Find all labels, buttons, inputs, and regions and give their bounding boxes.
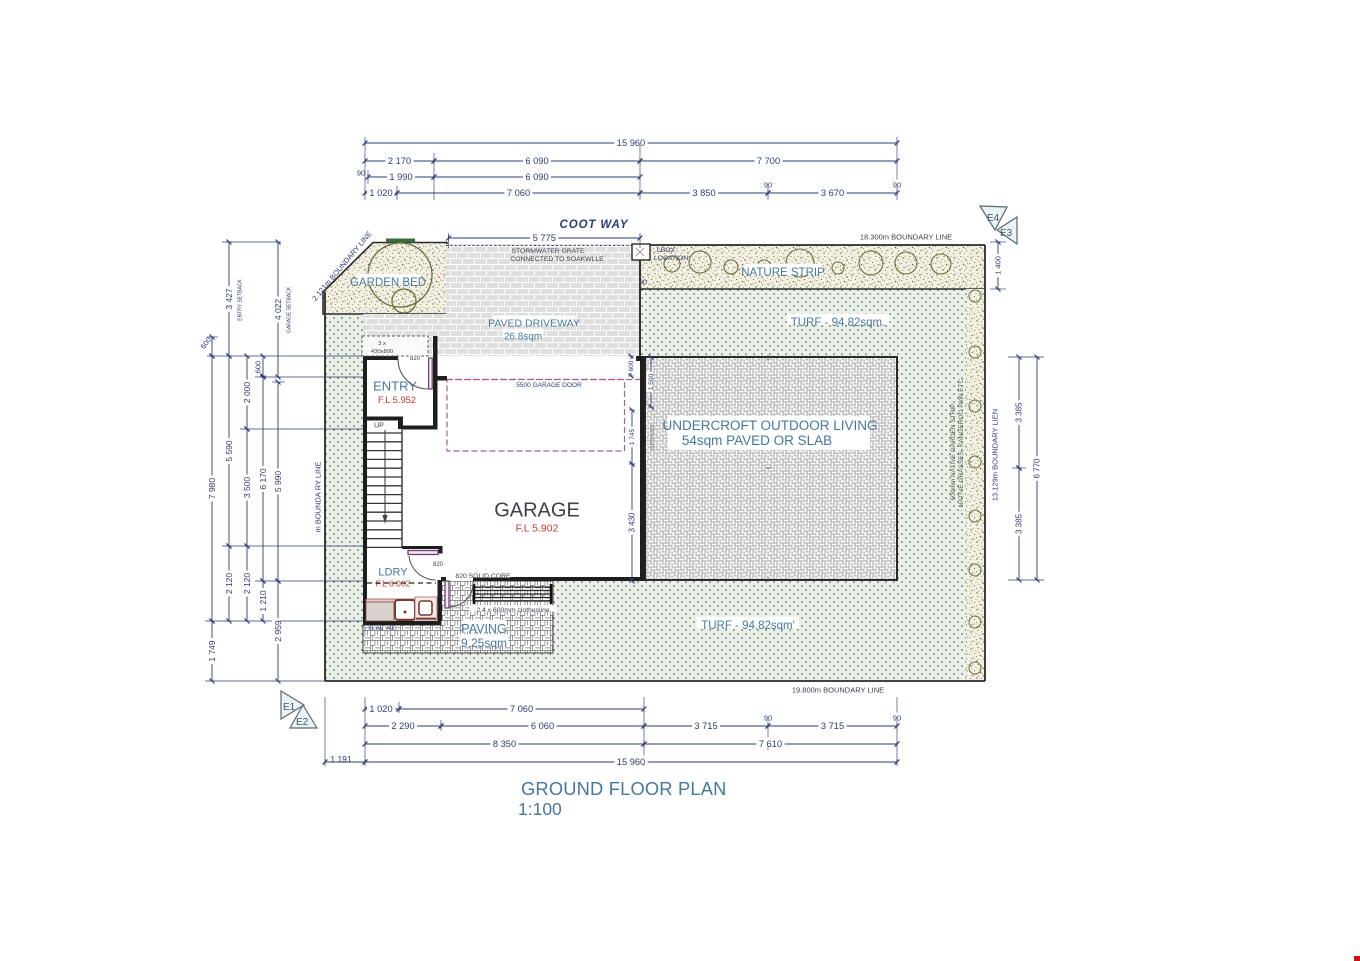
svg-text:CONNECTED TO SOAKWLLE: CONNECTED TO SOAKWLLE bbox=[510, 256, 604, 263]
svg-text:820: 820 bbox=[410, 356, 421, 362]
svg-text:2 170: 2 170 bbox=[388, 156, 411, 166]
svg-text:E2: E2 bbox=[296, 717, 309, 728]
svg-text:820 SOLID CORE: 820 SOLID CORE bbox=[455, 573, 511, 580]
svg-text:2 290: 2 290 bbox=[391, 721, 414, 731]
svg-text:STORMWATER GRATE: STORMWATER GRATE bbox=[511, 248, 584, 255]
svg-text:500mm NATIVE GARDEN STRIP: 500mm NATIVE GARDEN STRIP bbox=[950, 403, 957, 500]
svg-text:TURF - 94.82sqm': TURF - 94.82sqm' bbox=[701, 620, 795, 632]
svg-text:1 990: 1 990 bbox=[389, 172, 412, 182]
svg-text:PAVED DRIVEWAY: PAVED DRIVEWAY bbox=[488, 317, 580, 329]
svg-text:1.7m PAL FNC: 1.7m PAL FNC bbox=[363, 627, 396, 633]
svg-text:90: 90 bbox=[764, 713, 772, 722]
svg-text:7 060: 7 060 bbox=[510, 704, 533, 714]
svg-text:90: 90 bbox=[764, 180, 772, 189]
svg-text:TURF - 94.82sqm.: TURF - 94.82sqm. bbox=[791, 317, 886, 329]
svg-text:3 850: 3 850 bbox=[692, 188, 715, 198]
svg-text:5 590: 5 590 bbox=[224, 440, 234, 462]
svg-text:E1: E1 bbox=[283, 702, 296, 713]
svg-text:8 350: 8 350 bbox=[493, 739, 516, 749]
svg-text:18.300m BOUNDARY LINE: 18.300m BOUNDARY LINE bbox=[860, 232, 952, 241]
svg-text:6 170: 6 170 bbox=[258, 468, 268, 490]
svg-text:ENTRY SETBACK: ENTRY SETBACK bbox=[238, 279, 244, 321]
svg-text:2 120: 2 120 bbox=[242, 573, 252, 595]
svg-text:6 060: 6 060 bbox=[531, 721, 554, 731]
svg-text:1 191: 1 191 bbox=[330, 754, 352, 764]
svg-text:6 090: 6 090 bbox=[525, 172, 548, 182]
svg-text:1:100: 1:100 bbox=[518, 799, 562, 819]
svg-text:5500 GARAGE DOOR: 5500 GARAGE DOOR bbox=[516, 382, 582, 389]
svg-text:13.129m BOUNDARY LIEN: 13.129m BOUNDARY LIEN bbox=[990, 409, 999, 501]
svg-text:ENTRY: ENTRY bbox=[373, 378, 417, 393]
svg-text:5 990: 5 990 bbox=[273, 471, 283, 493]
svg-text:90: 90 bbox=[357, 168, 365, 177]
svg-text:54sqm PAVED OR SLAB: 54sqm PAVED OR SLAB bbox=[682, 433, 832, 448]
svg-text:GROUND FLOOR PLAN: GROUND FLOOR PLAN bbox=[521, 778, 727, 799]
svg-text:F.L 5.902: F.L 5.902 bbox=[516, 522, 559, 534]
svg-text:430x800: 430x800 bbox=[371, 349, 393, 355]
svg-text:7 980: 7 980 bbox=[207, 478, 217, 500]
svg-text:F.L 5.952: F.L 5.952 bbox=[378, 395, 416, 405]
svg-text:2 000: 2 000 bbox=[242, 382, 252, 404]
svg-text:26.8sqm: 26.8sqm bbox=[504, 331, 542, 342]
svg-text:3 715: 3 715 bbox=[694, 721, 717, 731]
svg-text:UP: UP bbox=[374, 422, 384, 429]
svg-text:90: 90 bbox=[639, 279, 647, 286]
svg-text:3 715: 3 715 bbox=[821, 721, 844, 731]
svg-text:600: 600 bbox=[253, 361, 262, 374]
svg-text:5 775: 5 775 bbox=[533, 233, 556, 243]
svg-text:LOCATION: LOCATION bbox=[654, 255, 688, 262]
svg-text:1 020: 1 020 bbox=[369, 188, 392, 198]
svg-text:2.4 x 600mm clothesline: 2.4 x 600mm clothesline bbox=[476, 607, 550, 614]
svg-text:4 022: 4 022 bbox=[273, 299, 283, 321]
svg-text:3 670: 3 670 bbox=[821, 188, 844, 198]
svg-text:820: 820 bbox=[433, 562, 444, 568]
svg-text:19.800m BOUNDARY LINE: 19.800m BOUNDARY LINE bbox=[792, 685, 884, 694]
svg-text:15 960: 15 960 bbox=[617, 757, 645, 767]
svg-text:NATURE STRIP: NATURE STRIP bbox=[741, 267, 825, 279]
svg-text:90: 90 bbox=[893, 180, 901, 189]
svg-text:2 959: 2 959 bbox=[273, 620, 283, 642]
svg-text:GARAGE: GARAGE bbox=[494, 500, 580, 522]
svg-text:3 385: 3 385 bbox=[1015, 402, 1024, 423]
svg-text:3 385: 3 385 bbox=[1015, 513, 1024, 534]
svg-text:7 060: 7 060 bbox=[507, 188, 530, 198]
svg-text:1 745: 1 745 bbox=[629, 428, 636, 445]
svg-text:2 120: 2 120 bbox=[224, 573, 234, 595]
svg-text:7 610: 7 610 bbox=[759, 739, 782, 749]
svg-text:6 770: 6 770 bbox=[1033, 458, 1042, 479]
svg-text:GARDEN BED: GARDEN BED bbox=[350, 277, 426, 289]
svg-text:1 400: 1 400 bbox=[993, 256, 1002, 275]
svg-text:1 500: 1 500 bbox=[648, 373, 655, 390]
svg-text:600: 600 bbox=[628, 360, 635, 371]
svg-text:3 427: 3 427 bbox=[224, 288, 234, 310]
svg-text:7 700: 7 700 bbox=[757, 156, 780, 166]
svg-text:PAVING: PAVING bbox=[461, 622, 506, 636]
svg-text:1 020: 1 020 bbox=[369, 704, 392, 714]
svg-text:GARAGE SETBACK: GARAGE SETBACK bbox=[287, 286, 293, 333]
svg-text:UNDERCROFT OUTDOOR LIVING: UNDERCROFT OUTDOOR LIVING bbox=[662, 418, 877, 433]
svg-text:3 x: 3 x bbox=[378, 341, 386, 347]
svg-text:90: 90 bbox=[893, 713, 901, 722]
svg-text:COOT WAY: COOT WAY bbox=[560, 219, 629, 231]
svg-text:- NATIVE GRASSES- KANGEROO PAW: - NATIVE GRASSES- KANGEROO PAW ETC bbox=[958, 378, 965, 511]
svg-text:1 210: 1 210 bbox=[258, 590, 268, 612]
svg-text:LBOX: LBOX bbox=[657, 247, 676, 254]
svg-text:6 090: 6 090 bbox=[525, 156, 548, 166]
svg-text:1 749: 1 749 bbox=[207, 640, 217, 662]
svg-text:OPENING: OPENING bbox=[650, 424, 656, 449]
svg-text:m BOUNDA RY LINE: m BOUNDA RY LINE bbox=[313, 462, 322, 533]
svg-text:15 960: 15 960 bbox=[617, 138, 645, 148]
svg-text:E4: E4 bbox=[987, 213, 1000, 224]
svg-text:E3: E3 bbox=[1000, 228, 1013, 239]
svg-text:3 500: 3 500 bbox=[242, 477, 252, 499]
svg-text:3 430: 3 430 bbox=[628, 512, 637, 533]
svg-text:9.25sqm: 9.25sqm bbox=[461, 636, 507, 650]
svg-text:LDRY: LDRY bbox=[378, 567, 408, 579]
